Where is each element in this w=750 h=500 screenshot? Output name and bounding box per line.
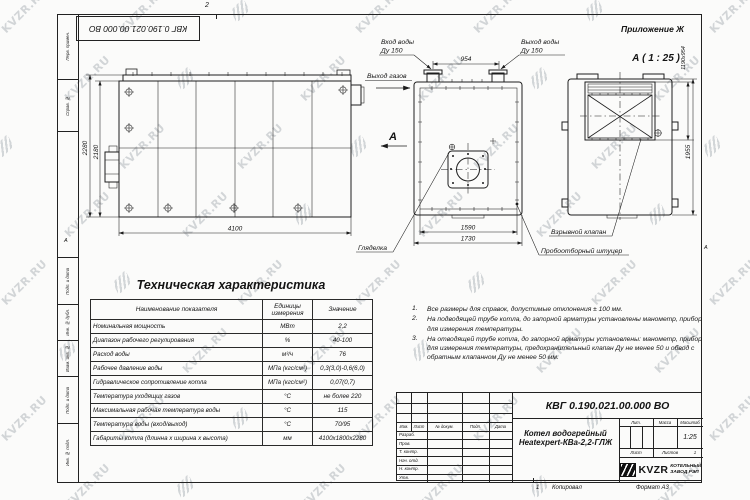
rev-header: № докум. — [427, 424, 462, 429]
left-col-box: Подп. и дата — [57, 258, 79, 305]
spec-value: не более 220 — [313, 390, 373, 404]
spec-header: Значение — [313, 300, 373, 320]
spec-name: Габариты котла (длинна х ширина х высота… — [91, 432, 263, 446]
product-name-line2: Heatexpert-КВа-2,2-ГЛЖ — [519, 438, 612, 447]
rev-header: Дата — [489, 424, 512, 429]
top-doc-number: КВГ 0.190.021.00.000 ВО — [89, 24, 187, 34]
spec-name: Номинальная мощность — [91, 320, 263, 334]
spec-unit: м³/ч — [263, 348, 313, 362]
zone-mark-top: 2 — [205, 2, 209, 9]
sign-row-label: Пров. — [399, 441, 411, 446]
rev-header: Лист — [411, 424, 427, 429]
table-row: Расход водым³/ч76 — [91, 348, 373, 362]
spec-unit: °С — [263, 390, 313, 404]
left-col-box: Инв. № дубл. — [57, 305, 79, 341]
spec-unit: МВт — [263, 320, 313, 334]
note-number: 3. — [412, 335, 427, 363]
spec-name: Гидравлическое сопротивление котла — [91, 376, 263, 390]
header-mass: Масса — [653, 420, 677, 425]
product-name-line1: Котел водогрейный — [524, 429, 607, 438]
left-col-label: Перв. примен. — [65, 32, 70, 61]
sheets-label: Листов — [655, 450, 685, 455]
spec-name: Температура уходящих газов — [91, 390, 263, 404]
spec-value: 115 — [313, 404, 373, 418]
spec-value: 40-100 — [313, 334, 373, 348]
table-row: Габариты котла (длинна х ширина х высота… — [91, 432, 373, 446]
product-name: Котел водогрейный Heatexpert-КВа-2,2-ГЛЖ — [512, 418, 619, 458]
left-col-label: Взам. инв. № — [65, 345, 70, 372]
sheet-label: Лист — [619, 450, 653, 455]
top-doc-number-box: КВГ 0.190.021.00.000 ВО — [76, 16, 200, 41]
left-col-label: Инв. № подл. — [65, 439, 70, 466]
note-text: Все размеры для справок, допустимые откл… — [427, 305, 704, 314]
spec-value: 76 — [313, 348, 373, 362]
note-item: 2.На подводящей трубе котла, до запорной… — [412, 315, 704, 334]
notes-block: 1.Все размеры для справок, допустимые от… — [412, 305, 704, 364]
left-col-box: Инв. № подл. — [57, 424, 79, 483]
spec-value: 2,2 — [313, 320, 373, 334]
spec-unit: мм — [263, 432, 313, 446]
header-scale: Масштаб — [677, 420, 703, 425]
left-col-box — [57, 132, 79, 258]
left-col-label: Подп. и дата — [65, 387, 70, 414]
company-logo-icon — [620, 463, 636, 477]
header-lit: Лит. — [619, 420, 653, 425]
note-number: 2. — [412, 315, 427, 334]
format-label: Формат А3 — [636, 485, 669, 491]
company-logo-text: KVZR — [638, 464, 668, 476]
company-name-line2: ЗАВОД РЭП — [670, 470, 701, 476]
fold-mark-left: А — [64, 238, 68, 244]
left-col-label: Справ. № — [65, 96, 70, 116]
note-item: 3.На отводящей трубе котла, до запорной … — [412, 335, 704, 363]
table-row: Номинальная мощностьМВт2,2 — [91, 320, 373, 334]
table-row: Максимальная рабочая температура воды°С1… — [91, 404, 373, 418]
spec-unit: °С — [263, 404, 313, 418]
left-col-box: Взам. инв. № — [57, 341, 79, 377]
left-col-label: Инв. № дубл. — [65, 309, 70, 336]
spec-name: Диапазон рабочего регулирования — [91, 334, 263, 348]
sign-row-label: Н. контр. — [399, 466, 419, 471]
table-row: Температура воды (вход/выход)°С70/95 — [91, 418, 373, 432]
spec-name: Расход воды — [91, 348, 263, 362]
spec-unit: % — [263, 334, 313, 348]
left-col-label: Подп. и дата — [65, 268, 70, 295]
fold-mark-right: А — [704, 245, 708, 251]
spec-value: 0,07(0,7) — [313, 376, 373, 390]
table-row: Температура уходящих газов°Сне более 220 — [91, 390, 373, 404]
note-number: 1. — [412, 305, 427, 314]
doc-number: КВГ 0.190.021.00.000 ВО — [512, 393, 703, 418]
table-row: Рабочее давление водыМПа (кгс/см²)0,3(3,… — [91, 362, 373, 376]
rev-header: Подп. — [462, 424, 489, 429]
sheets-value: 1 — [689, 450, 701, 455]
sign-row-label: Нач. отд. — [399, 458, 419, 463]
spec-unit: МПа (кгс/см²) — [263, 376, 313, 390]
spec-header: Единицы измерения — [263, 300, 313, 320]
company-block: KVZR КОТЕЛЬНЫЙ ЗАВОД РЭП — [619, 457, 703, 482]
sign-row-label: Т. контр. — [399, 449, 418, 454]
spec-value: 0,3(3,0)-0,6(6,0) — [313, 362, 373, 376]
note-text: На подводящей трубе котла, до запорной а… — [427, 315, 704, 334]
spec-unit: МПа (кгс/см²) — [263, 362, 313, 376]
sign-row-label: Разраб. — [399, 432, 415, 437]
rev-header: Изм. — [397, 424, 411, 429]
table-row: Гидравлическое сопротивление котлаМПа (к… — [91, 376, 373, 390]
table-row: Диапазон рабочего регулирования%40-100 — [91, 334, 373, 348]
spec-unit: °С — [263, 418, 313, 432]
zone-mark-bottom: 1 — [536, 485, 539, 491]
spec-value: 70/95 — [313, 418, 373, 432]
spec-name: Максимальная рабочая температура воды — [91, 404, 263, 418]
spec-header: Наименование показателя — [91, 300, 263, 320]
spec-table: Наименование показателя Единицы измерени… — [90, 299, 373, 446]
title-block: Изм. Лист № докум. Подп. Дата Разраб. Пр… — [396, 392, 702, 481]
scale-value: 1:25 — [677, 434, 703, 441]
left-col-box: Подп. и дата — [57, 377, 79, 424]
copied-label: Копировал — [552, 485, 582, 491]
left-col-box: Справ. № — [57, 80, 79, 132]
spec-value: 4100х1800х2280 — [313, 432, 373, 446]
spec-table-title: Техническая характеристика — [90, 278, 372, 292]
sign-row-label: Утв. — [399, 475, 409, 480]
spec-header-row: Наименование показателя Единицы измерени… — [91, 300, 373, 320]
spec-name: Рабочее давление воды — [91, 362, 263, 376]
note-text: На отводящей трубе котла, до запорной ар… — [427, 335, 704, 363]
drawing-sheet: KVZR.RUKVZR.RUKVZR.RUKVZR.RUKVZR.RUKVZR.… — [0, 0, 750, 500]
spec-name: Температура воды (вход/выход) — [91, 418, 263, 432]
note-item: 1.Все размеры для справок, допустимые от… — [412, 305, 704, 314]
